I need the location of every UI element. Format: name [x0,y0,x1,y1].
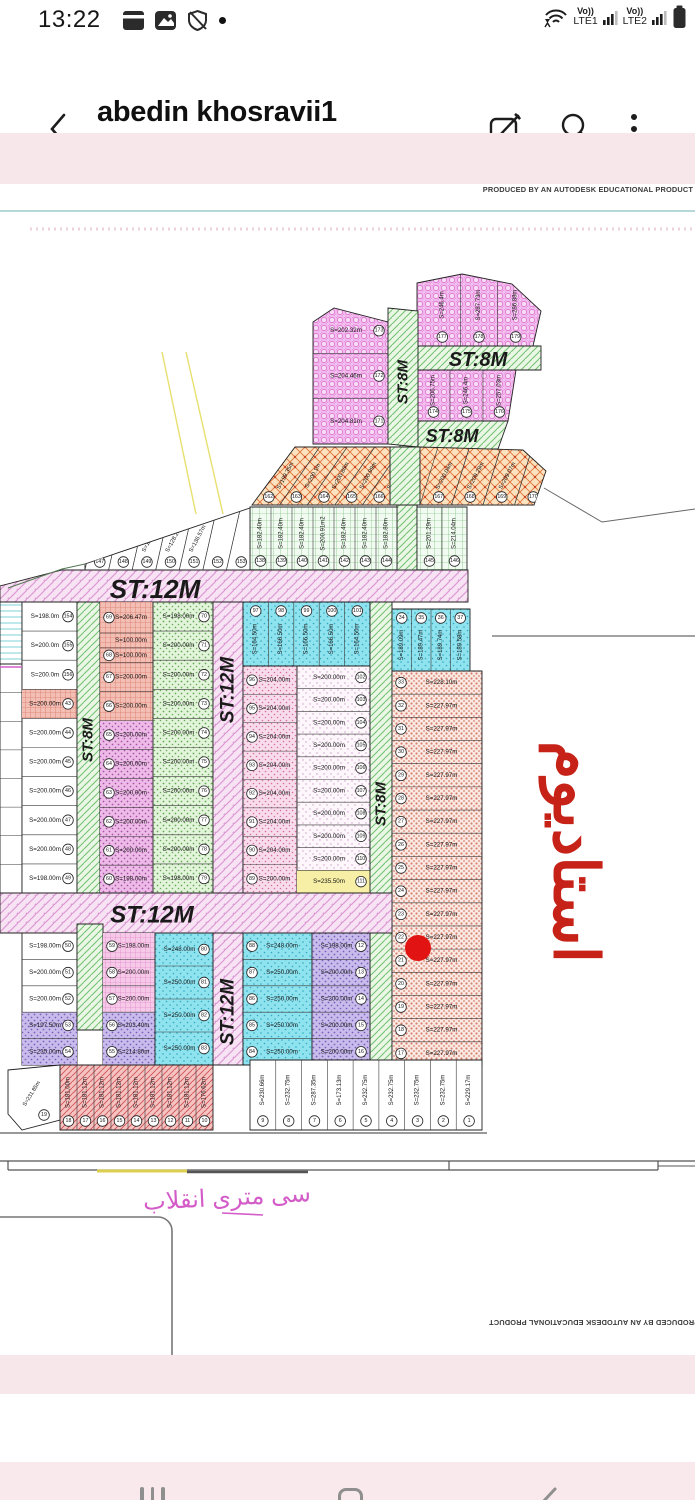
block-st12m-h2: ST:12M [0,893,392,933]
plot-number: 111 [356,876,367,887]
svg-text:S=198.00m: S=198.00m [115,876,147,883]
svg-text:S=100.00m: S=100.00m [115,652,147,659]
plot-number: 33 [396,677,407,688]
svg-text:67: 67 [106,674,112,680]
plot-number: 46 [63,786,74,797]
svg-text:S=181.12m: S=181.12m [83,1077,89,1108]
android-nav-bar [0,1462,695,1500]
svg-text:92: 92 [249,791,255,797]
plot-number: 22 [396,932,407,943]
location-marker-dot[interactable] [405,935,431,961]
shield-off-icon [186,9,209,37]
plot-number: 178 [474,332,485,343]
plot-number: 69 [104,612,115,623]
svg-text:S=200.00m: S=200.00m [321,1048,353,1055]
svg-text:94: 94 [249,734,255,740]
svg-text:S=200.00m: S=200.00m [115,703,147,710]
svg-text:19: 19 [41,1112,47,1118]
svg-text:62: 62 [106,819,112,825]
svg-text:S=204.00m: S=204.00m [259,677,291,684]
plot-number: 44 [63,728,74,739]
svg-text:146: 146 [450,558,459,564]
svg-text:93: 93 [249,762,255,768]
block-colB: S=206.47m69S=100.00mS=100.00m68S=200.00m… [100,602,153,893]
plot-number: 3 [412,1116,423,1127]
svg-text:101: 101 [353,608,362,614]
svg-text:164: 164 [320,494,329,500]
svg-text:139: 139 [277,558,286,564]
svg-text:91: 91 [249,819,255,825]
svg-text:8: 8 [287,1118,290,1124]
svg-text:177: 177 [438,334,447,340]
svg-text:S=200.00m: S=200.00m [163,671,195,678]
svg-text:72: 72 [201,672,207,678]
svg-text:3: 3 [416,1118,419,1124]
svg-text:153: 153 [237,559,246,565]
svg-text:31: 31 [398,726,404,732]
svg-text:45: 45 [65,759,71,765]
svg-text:18: 18 [66,1118,72,1124]
plot-number: 12 [356,941,367,952]
block-stub [77,924,103,1030]
svg-text:S=200.00m: S=200.00m [163,788,195,795]
plot-number: 164 [319,492,330,503]
svg-text:S=250.00m: S=250.00m [266,996,298,1003]
svg-text:S=200.91m2: S=200.91m2 [321,516,327,551]
svg-text:ST:12M: ST:12M [218,656,239,723]
svg-text:S=189.09m: S=189.09m [399,630,405,661]
plot-number: 61 [104,845,115,856]
svg-text:ST:8M: ST:8M [373,782,390,826]
plot-number: 52 [63,994,74,1005]
svg-text:76: 76 [201,788,207,794]
status-indicators: Vo)) LTE1 Vo)) LTE2 [542,4,687,30]
plot-number: 75 [199,757,210,768]
plot-number: 54 [63,1047,74,1058]
svg-text:58: 58 [109,970,115,976]
svg-text:25: 25 [398,865,404,871]
plot-number: 169 [496,492,507,503]
svg-text:57: 57 [109,996,115,1002]
svg-text:27: 27 [398,819,404,825]
svg-text:S=182.80m: S=182.80m [384,518,390,549]
svg-text:S=200.00m: S=200.00m [29,788,61,795]
plot-number: 77 [199,815,210,826]
block-colC: S=198.00m70S=200.00m71S=200.00m72S=200.0… [153,602,213,893]
block-p2: S=206.75m174S=246.4m175S=257.03m176 [417,370,516,421]
plot-number: 14 [356,994,367,1005]
status-bar: 13:22 Vo)) LTE1 Vo)) LTE2 [0,0,695,40]
svg-text:S=200.00m: S=200.00m [321,969,353,976]
block-st8m-v1: ST:8M [77,602,100,893]
svg-text:S=200.00m: S=200.00m [115,818,147,825]
svg-text:61: 61 [106,848,112,854]
svg-text:150: 150 [166,559,175,565]
svg-text:106: 106 [357,765,366,771]
svg-text:64: 64 [106,761,112,767]
plot-number: 20 [396,979,407,990]
svg-text:110: 110 [357,856,365,862]
plot-number: 109 [356,831,367,842]
plot-number: 147 [94,557,105,568]
svg-text:46: 46 [65,788,71,794]
plot-number: 59 [107,941,118,952]
svg-text:S=214.80m: S=214.80m [118,1048,150,1055]
svg-text:34: 34 [399,615,405,621]
plot-number: 23 [396,909,407,920]
plot-number: 30 [396,747,407,758]
lower-parcel-outline [0,1217,172,1355]
svg-text:S=200.0m: S=200.0m [31,642,59,649]
block-cyanTop: S=164.50m97S=166.50m98S=166.50m99S=166.5… [243,602,370,666]
svg-text:168: 168 [466,494,475,500]
svg-text:35: 35 [418,615,424,621]
svg-text:179: 179 [511,334,520,340]
svg-text:S=204.00m: S=204.00m [259,762,291,769]
plot-number: 150 [165,557,176,568]
block-cyan34: S=189.09m34S=189.47m35S=189.74m36S=189.5… [392,609,470,671]
plot-number: 155 [63,640,74,651]
svg-text:141: 141 [319,558,328,564]
svg-text:16: 16 [358,1049,364,1055]
svg-text:S=200.00m: S=200.00m [313,855,345,862]
svg-text:S=166.50m: S=166.50m [278,624,284,655]
svg-text:S=198.00m: S=198.00m [163,613,195,620]
plot-number: 17 [396,1048,407,1059]
svg-text:174: 174 [429,409,438,415]
plot-number: 167 [433,492,444,503]
svg-text:17: 17 [83,1118,89,1124]
svg-text:S=197.50m: S=197.50m [29,1022,61,1029]
plot-number: 25 [396,863,407,874]
svg-text:154: 154 [64,614,73,620]
plot-number: 171 [374,416,385,427]
plot-number: 143 [360,556,371,567]
plot-number: 49 [63,873,74,884]
svg-text:S=200.00m: S=200.00m [163,700,195,707]
svg-text:S=200.00m: S=200.00m [29,729,61,736]
svg-text:S=200.00m: S=200.00m [29,969,61,976]
svg-text:178: 178 [475,334,484,340]
svg-text:S=200.00m: S=200.00m [163,817,195,824]
plot-number: 58 [107,967,118,978]
plot-number: 162 [264,492,275,503]
svg-text:S=227.97m: S=227.97m [426,888,458,895]
plot-number: 107 [356,786,367,797]
svg-text:44: 44 [65,730,71,736]
svg-text:5: 5 [365,1118,368,1124]
block-slope: S=81.6m147S=110.48m148S=119.57m149S=128.… [85,508,264,570]
plot-number: 56 [107,1020,118,1031]
svg-text:S=287.73m: S=287.73m [476,290,482,321]
block-st8m-va: ST:8M [388,308,418,447]
plot-number: 26 [396,840,407,851]
recents-icon[interactable] [140,1487,165,1500]
svg-text:S=246.4m: S=246.4m [439,291,445,319]
plot-number: 105 [356,740,367,751]
svg-text:166: 166 [375,494,384,500]
block-colD2: S=248.00m88S=250.00m87S=250.00m86S=250.0… [243,933,312,1065]
svg-text:S=200.00m: S=200.00m [29,996,61,1003]
stadium-annotation: استادیوم [538,741,610,963]
svg-text:S=227.97m: S=227.97m [426,911,458,918]
gallery-icon [154,9,177,37]
svg-text:S=200.00m: S=200.00m [115,789,147,796]
block-sliver-cyan [0,602,22,664]
svg-text:79: 79 [201,875,207,881]
svg-text:109: 109 [357,833,366,839]
svg-text:S=200.00m: S=200.00m [313,833,345,840]
svg-text:S=200.00m: S=200.00m [313,742,345,749]
plot-number: 165 [346,492,357,503]
plot-number: 48 [63,844,74,855]
svg-text:12: 12 [358,943,364,949]
svg-text:103: 103 [357,697,366,703]
svg-text:81: 81 [201,980,207,986]
svg-text:S=198.00m: S=198.00m [118,943,150,950]
svg-text:S=200.00m: S=200.00m [259,875,291,882]
svg-text:15: 15 [358,1022,364,1028]
svg-text:S=200.00m: S=200.00m [118,969,150,976]
plot-number: 92 [247,788,258,799]
svg-text:24: 24 [398,888,404,894]
plot-number: 98 [276,606,287,617]
svg-text:S=235.50m: S=235.50m [313,878,345,885]
plot-number: 99 [301,606,312,617]
plot-number: 4 [386,1116,397,1127]
svg-text:17: 17 [398,1050,404,1056]
producer-watermark-bottom: PRODUCED BY AN AUTODESK EDUCATIONAL PROD… [489,1318,695,1327]
block-rowR: S=230.66m9S=232.75m8S=287.35m7S=173.13m6… [250,1060,482,1130]
svg-text:142: 142 [340,558,349,564]
svg-text:30: 30 [398,749,404,755]
plot-number: 36 [435,613,446,624]
plot-number: 13 [356,967,367,978]
svg-text:50: 50 [65,943,71,949]
svg-text:ST:8M: ST:8M [449,349,509,371]
svg-text:S=227.97m: S=227.97m [426,865,458,872]
svg-text:6: 6 [339,1118,342,1124]
svg-text:43: 43 [65,701,71,707]
plot-number: 85 [247,1020,258,1031]
block-colB2: S=198.00m59S=200.00m58S=200.00m57S=203.4… [103,933,155,1065]
plot-number: 2 [438,1116,449,1127]
svg-text:S=250.00m: S=250.00m [164,1012,196,1019]
plot-number: 145 [424,556,435,567]
plot-number: 90 [247,845,258,856]
svg-text:176: 176 [495,409,504,415]
svg-text:10: 10 [202,1118,208,1124]
svg-text:95: 95 [249,706,255,712]
svg-text:S=200.00m: S=200.00m [115,760,147,767]
plot-number: 63 [104,788,115,799]
svg-text:20: 20 [398,981,404,987]
svg-text:S=227.97m: S=227.97m [426,725,458,732]
svg-text:ST:8M: ST:8M [395,360,412,404]
plot-number: 100 [327,606,338,617]
svg-text:49: 49 [65,875,71,881]
plot-number: 93 [247,760,258,771]
svg-text:2: 2 [442,1118,445,1124]
plot-number: 142 [339,556,350,567]
svg-text:S=235.00m: S=235.00m [29,1048,61,1055]
plot-number: 74 [199,728,210,739]
svg-text:14: 14 [358,996,364,1002]
home-icon[interactable] [338,1488,363,1500]
svg-text:77: 77 [201,817,207,823]
plot-number: 29 [396,770,407,781]
plot-number: 70 [199,611,210,622]
plot-number: 82 [199,1010,210,1021]
svg-text:48: 48 [65,846,71,852]
svg-text:S=227.97m: S=227.97m [426,957,458,964]
svg-text:33: 33 [398,680,404,686]
producer-watermark-top: PRODUCED BY AN AUTODESK EDUCATIONAL PROD… [483,185,693,194]
plot-number: 31 [396,724,407,735]
svg-text:69: 69 [106,615,112,621]
plot-number: 21 [396,955,407,966]
svg-text:16: 16 [100,1118,106,1124]
plot-number: 154 [63,611,74,622]
svg-text:S=250.00m: S=250.00m [164,1045,196,1052]
plot-number: 87 [247,967,258,978]
plot-number: 68 [104,650,115,661]
svg-text:S=204.81m: S=204.81m [330,418,362,425]
svg-text:68: 68 [106,652,112,658]
svg-text:19: 19 [398,1004,404,1010]
svg-text:63: 63 [106,790,112,796]
plot-number: 81 [199,977,210,988]
svg-text:108: 108 [357,811,366,817]
plot-number: 1 [464,1116,475,1127]
svg-text:52: 52 [65,996,71,1002]
nav-back-icon[interactable] [536,1487,560,1500]
svg-text:S=181.12m: S=181.12m [117,1077,123,1108]
block-colE2: S=198.00m12S=200.00m13S=200.00m14S=200.0… [312,933,370,1065]
svg-text:S=227.97m: S=227.97m [426,795,458,802]
block-rowL: S=181.00m18S=181.12m17S=181.12m16S=181.1… [60,1065,213,1130]
svg-text:S=200.00m: S=200.00m [29,700,61,707]
svg-text:S=227.97m: S=227.97m [426,1004,458,1011]
svg-text:1: 1 [468,1118,471,1124]
plot-number: 89 [247,874,258,885]
svg-text:S=200.00m: S=200.00m [118,996,150,1003]
svg-text:165: 165 [347,494,356,500]
plot-number: 7 [309,1116,320,1127]
svg-text:21: 21 [398,958,404,964]
block-st12m-v: ST:12MST:12M [213,602,243,1065]
svg-text:S=204.00m: S=204.00m [259,847,291,854]
svg-text:ST:12M: ST:12M [110,574,202,604]
svg-text:15: 15 [117,1118,123,1124]
svg-text:S=176.62m: S=176.62m [202,1077,208,1108]
svg-text:S=227.97m: S=227.97m [426,818,458,825]
add-to-note-bar: Add to note [0,1394,695,1462]
svg-text:S=232.75m: S=232.75m [415,1075,421,1106]
plot-number: 8 [283,1116,294,1127]
plot-number: 28 [396,793,407,804]
svg-text:S=181.12m: S=181.12m [151,1077,157,1108]
plot-number: 73 [199,699,210,710]
pdf-page-map[interactable]: S=246.4m177S=287.73m178S=286.88m179S=206… [0,212,695,1355]
plot-number: 24 [396,886,407,897]
plot-number: 97 [250,606,261,617]
svg-text:S=286.88m: S=286.88m [513,290,519,321]
svg-text:S=250.00m: S=250.00m [164,979,196,986]
plot-number: 108 [356,808,367,819]
plot-number: 32 [396,700,407,711]
svg-text:56: 56 [109,1022,115,1028]
svg-text:S=181.12m: S=181.12m [134,1077,140,1108]
block-st8m-h1: ST:8M [417,346,541,371]
plot-number: 104 [356,717,367,728]
plot-number: 37 [455,613,466,624]
plot-number: 102 [356,672,367,683]
svg-text:S=200.00m: S=200.00m [115,732,147,739]
svg-text:167: 167 [434,494,443,500]
svg-text:S=200.00m: S=200.00m [321,996,353,1003]
svg-text:S=198.00m: S=198.00m [29,943,61,950]
svg-text:S=182.40m: S=182.40m [258,518,264,549]
svg-text:26: 26 [398,842,404,848]
svg-text:47: 47 [65,817,71,823]
plot-number: 94 [247,732,258,743]
svg-text:S=227.97m: S=227.97m [426,980,458,987]
svg-text:S=200.00m: S=200.00m [313,719,345,726]
plot-number: 47 [63,815,74,826]
svg-text:S=81.6m: S=81.6m [96,527,112,551]
block-p3: S=202.32m173S=204.46m172S=204.81m171 [313,308,388,444]
block-plot19: S=231.85m19 [8,1065,60,1130]
svg-text:ST:8M: ST:8M [80,718,97,762]
svg-text:S=204.00m: S=204.00m [259,790,291,797]
block-st12m-h1: ST:12M [0,570,468,604]
block-colE: S=200.00m102S=200.00m103S=200.00m104S=20… [297,666,370,893]
svg-text:S=200.00m: S=200.00m [115,847,147,854]
plot-number: 166 [374,492,385,503]
plot-number: 78 [199,844,210,855]
svg-text:S=181.00m: S=181.00m [66,1077,72,1108]
svg-text:S=198.00m: S=198.00m [29,875,61,882]
plot-number: 64 [104,759,115,770]
page-margin-band-bottom [0,1355,695,1394]
svg-text:ST:12M: ST:12M [218,978,239,1045]
block-p1: S=246.4m177S=287.73m178S=286.88m179 [417,274,541,346]
svg-text:4: 4 [390,1118,393,1124]
svg-text:S=206.75m: S=206.75m [431,375,437,406]
svg-text:S=200.00m: S=200.00m [313,810,345,817]
svg-text:7: 7 [313,1118,316,1124]
battery-icon [672,4,687,30]
plot-number: 172 [374,371,385,382]
svg-text:59: 59 [109,943,115,949]
plot-number: 141 [318,556,329,567]
svg-text:171: 171 [375,418,384,424]
plot-number: 176 [494,407,505,418]
svg-text:32: 32 [398,703,404,709]
plot-number: 156 [63,669,74,680]
map-line [222,1213,263,1215]
svg-text:S=200.00m: S=200.00m [163,846,195,853]
block-st8m-vc [397,505,417,570]
svg-text:S=198.0m: S=198.0m [31,613,59,620]
svg-text:S=200.00m: S=200.00m [163,729,195,736]
svg-text:S=200.00m: S=200.00m [29,759,61,766]
plot-number: 91 [247,817,258,828]
plot-number: 152 [212,557,223,568]
svg-text:173: 173 [375,328,384,334]
plot-number: 96 [247,675,258,686]
